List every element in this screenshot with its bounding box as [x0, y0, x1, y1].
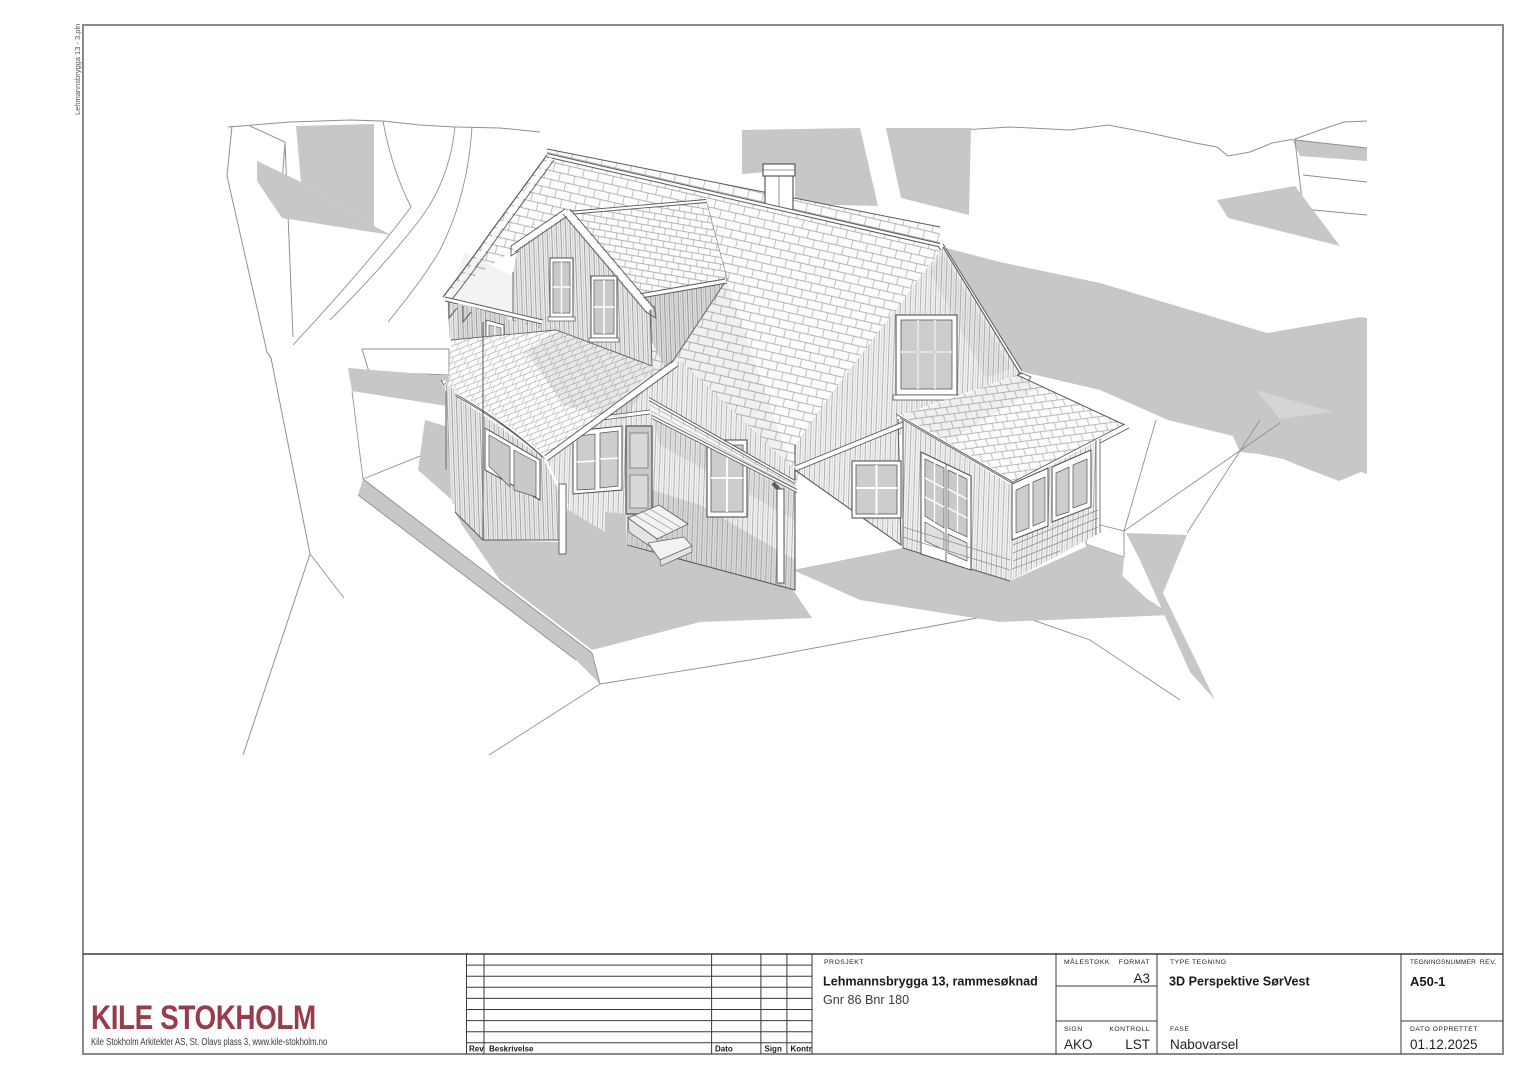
svg-text:PROSJEKT: PROSJEKT — [824, 959, 864, 966]
svg-text:Kile Stokholm Arkitekter AS, S: Kile Stokholm Arkitekter AS, St. Olavs p… — [91, 1036, 327, 1047]
svg-text:KILE STOKHOLM: KILE STOKHOLM — [91, 998, 316, 1036]
svg-text:Gnr 86 Bnr 180: Gnr 86 Bnr 180 — [823, 993, 909, 1007]
svg-text:3D Perspektive SørVest: 3D Perspektive SørVest — [1169, 975, 1311, 989]
svg-text:FASE: FASE — [1170, 1026, 1189, 1033]
svg-text:A3: A3 — [1133, 971, 1150, 986]
svg-text:DATO OPPRETTET: DATO OPPRETTET — [1410, 1026, 1478, 1033]
svg-text:01.12.2025: 01.12.2025 — [1410, 1037, 1478, 1052]
svg-text:Lehmannsbrygga 13 - 3.pln: Lehmannsbrygga 13 - 3.pln — [73, 24, 82, 115]
svg-text:FORMAT: FORMAT — [1119, 959, 1150, 966]
svg-text:TYPE TEGNING: TYPE TEGNING — [1170, 959, 1226, 966]
svg-text:Beskrivelse: Beskrivelse — [489, 1045, 534, 1054]
svg-text:Sign: Sign — [765, 1045, 782, 1054]
svg-text:TEGNINGSNUMMER: TEGNINGSNUMMER — [1410, 959, 1476, 966]
svg-text:REV.: REV. — [1480, 959, 1497, 966]
svg-text:A50-1: A50-1 — [1410, 974, 1445, 989]
svg-text:KONTROLL: KONTROLL — [1109, 1026, 1150, 1033]
svg-text:Dato: Dato — [715, 1045, 733, 1054]
svg-text:LST: LST — [1125, 1037, 1150, 1052]
svg-text:AKO: AKO — [1064, 1037, 1093, 1052]
svg-text:Rev: Rev — [469, 1045, 484, 1054]
svg-text:Lehmannsbrygga 13, rammesøknad: Lehmannsbrygga 13, rammesøknad — [823, 975, 1038, 989]
svg-text:Kontr: Kontr — [791, 1045, 812, 1054]
svg-text:SIGN: SIGN — [1064, 1026, 1083, 1033]
svg-text:Nabovarsel: Nabovarsel — [1170, 1037, 1238, 1052]
svg-text:MÅLESTOKK: MÅLESTOKK — [1064, 957, 1110, 966]
